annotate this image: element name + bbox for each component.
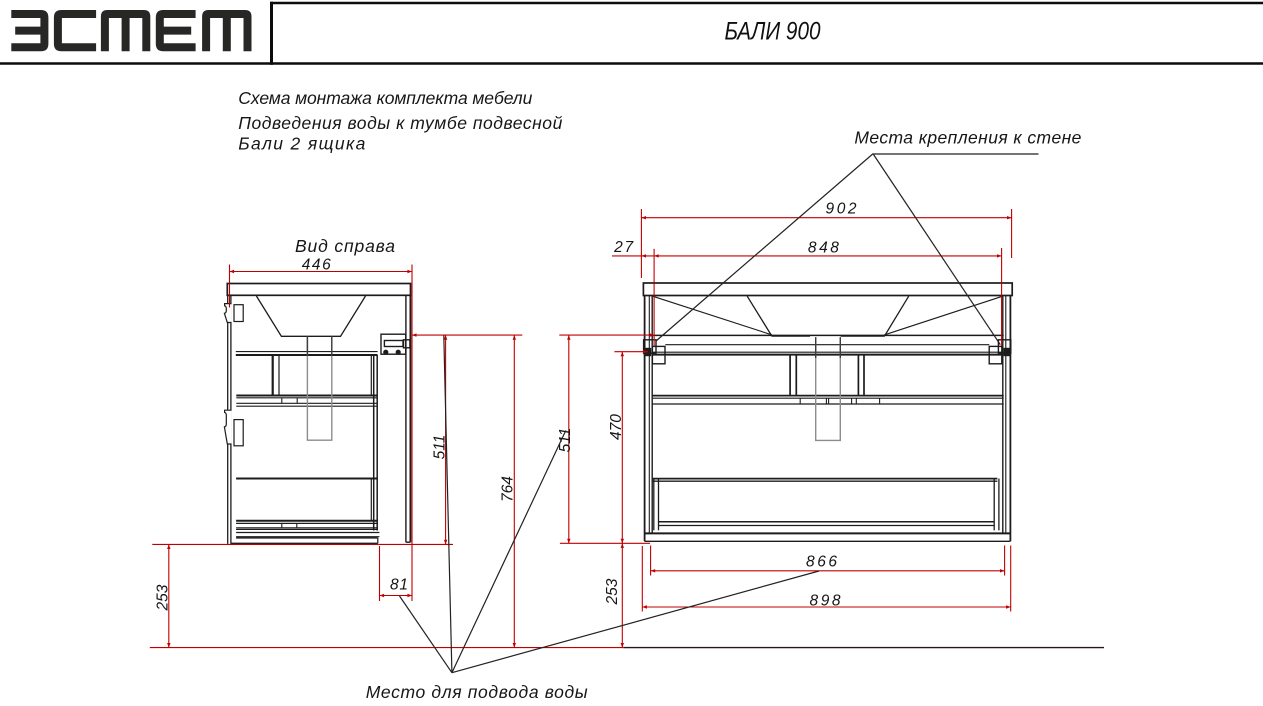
svg-text:898: 898 — [810, 593, 841, 610]
svg-text:Место для подвода воды: Место для подвода воды — [366, 682, 588, 702]
svg-text:470: 470 — [608, 414, 625, 440]
svg-text:Схема монтажа комплекта меб: Схема монтажа комплекта мебели — [238, 88, 532, 108]
svg-text:253: 253 — [155, 584, 172, 611]
svg-text:446: 446 — [302, 257, 331, 274]
svg-text:848: 848 — [808, 240, 839, 257]
svg-text:27: 27 — [613, 239, 634, 256]
svg-text:81: 81 — [390, 577, 408, 594]
svg-text:253: 253 — [604, 578, 621, 605]
svg-text:Вид справа: Вид справа — [295, 236, 395, 256]
svg-text:764: 764 — [500, 476, 517, 502]
svg-text:Бали 2 ящика: Бали 2 ящика — [238, 134, 365, 154]
svg-text:Подведения воды к тумбе по: Подведения воды к тумбе подвесной — [238, 113, 562, 133]
svg-text:866: 866 — [806, 554, 837, 571]
svg-text:БАЛИ 900: БАЛИ 900 — [725, 18, 821, 46]
svg-text:902: 902 — [826, 201, 857, 218]
svg-text:Места крепления к стене: Места крепления к стене — [854, 128, 1081, 148]
